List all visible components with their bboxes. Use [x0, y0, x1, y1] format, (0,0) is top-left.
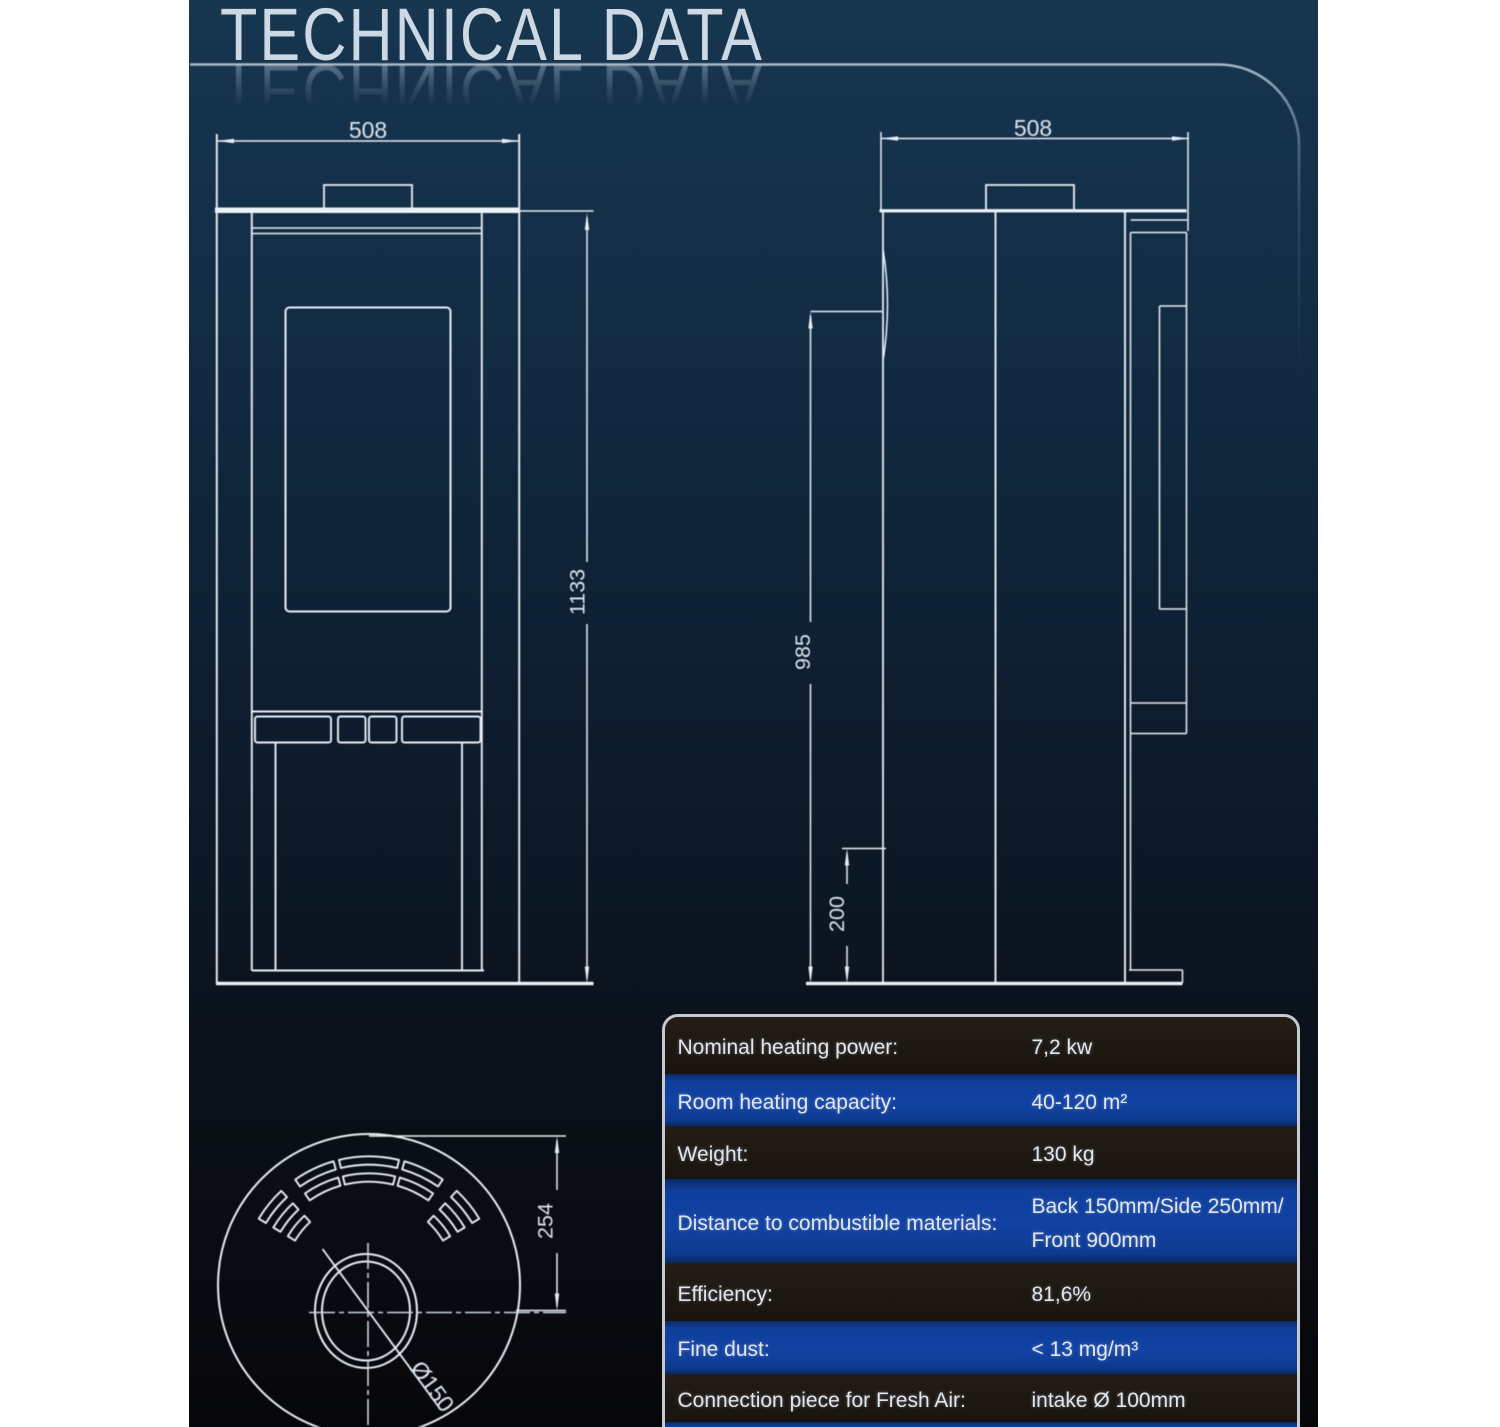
svg-text:1133: 1133 — [566, 569, 590, 615]
svg-text:985: 985 — [791, 634, 815, 670]
svg-text:254: 254 — [534, 1203, 558, 1239]
svg-text:508: 508 — [1014, 115, 1052, 141]
svg-text:Ø150: Ø150 — [405, 1356, 459, 1417]
svg-text:508: 508 — [349, 117, 387, 143]
svg-text:200: 200 — [825, 896, 849, 932]
